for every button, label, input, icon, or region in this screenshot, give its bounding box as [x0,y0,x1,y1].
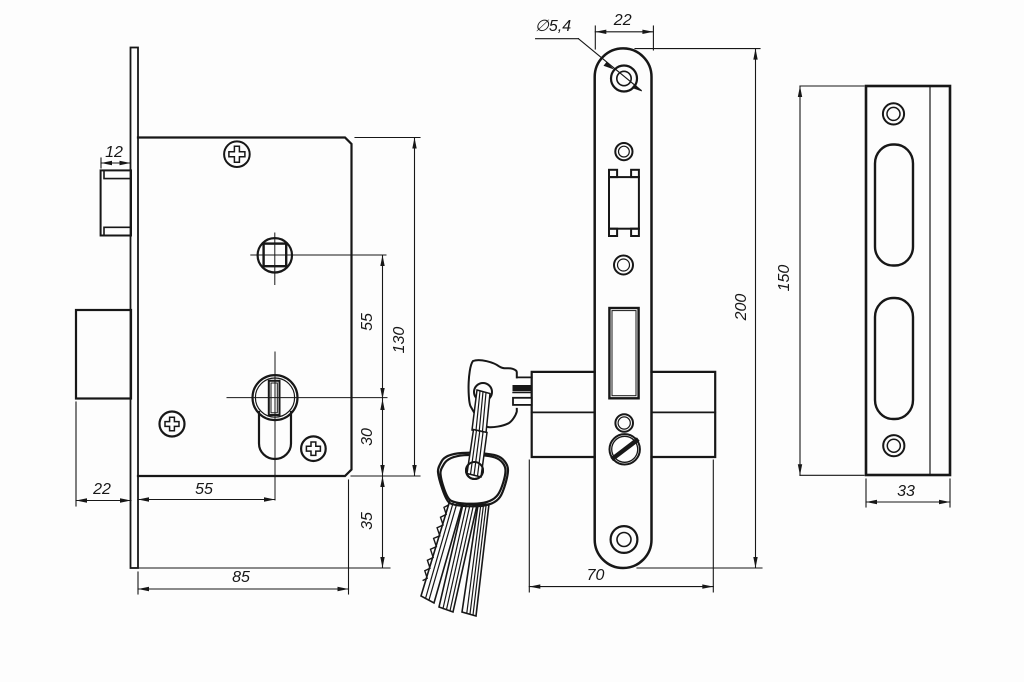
svg-text:70: 70 [587,567,605,584]
svg-text:30: 30 [359,428,376,446]
svg-text:130: 130 [391,327,408,354]
svg-text:85: 85 [232,569,250,586]
svg-text:33: 33 [897,483,915,500]
svg-text:55: 55 [195,481,213,498]
svg-text:22: 22 [613,12,632,29]
svg-text:200: 200 [733,294,750,322]
svg-text:150: 150 [776,265,793,292]
svg-text:∅5,4: ∅5,4 [535,18,571,35]
svg-text:55: 55 [359,313,376,331]
svg-text:35: 35 [359,512,376,530]
svg-text:22: 22 [92,481,111,498]
svg-text:12: 12 [105,144,123,161]
